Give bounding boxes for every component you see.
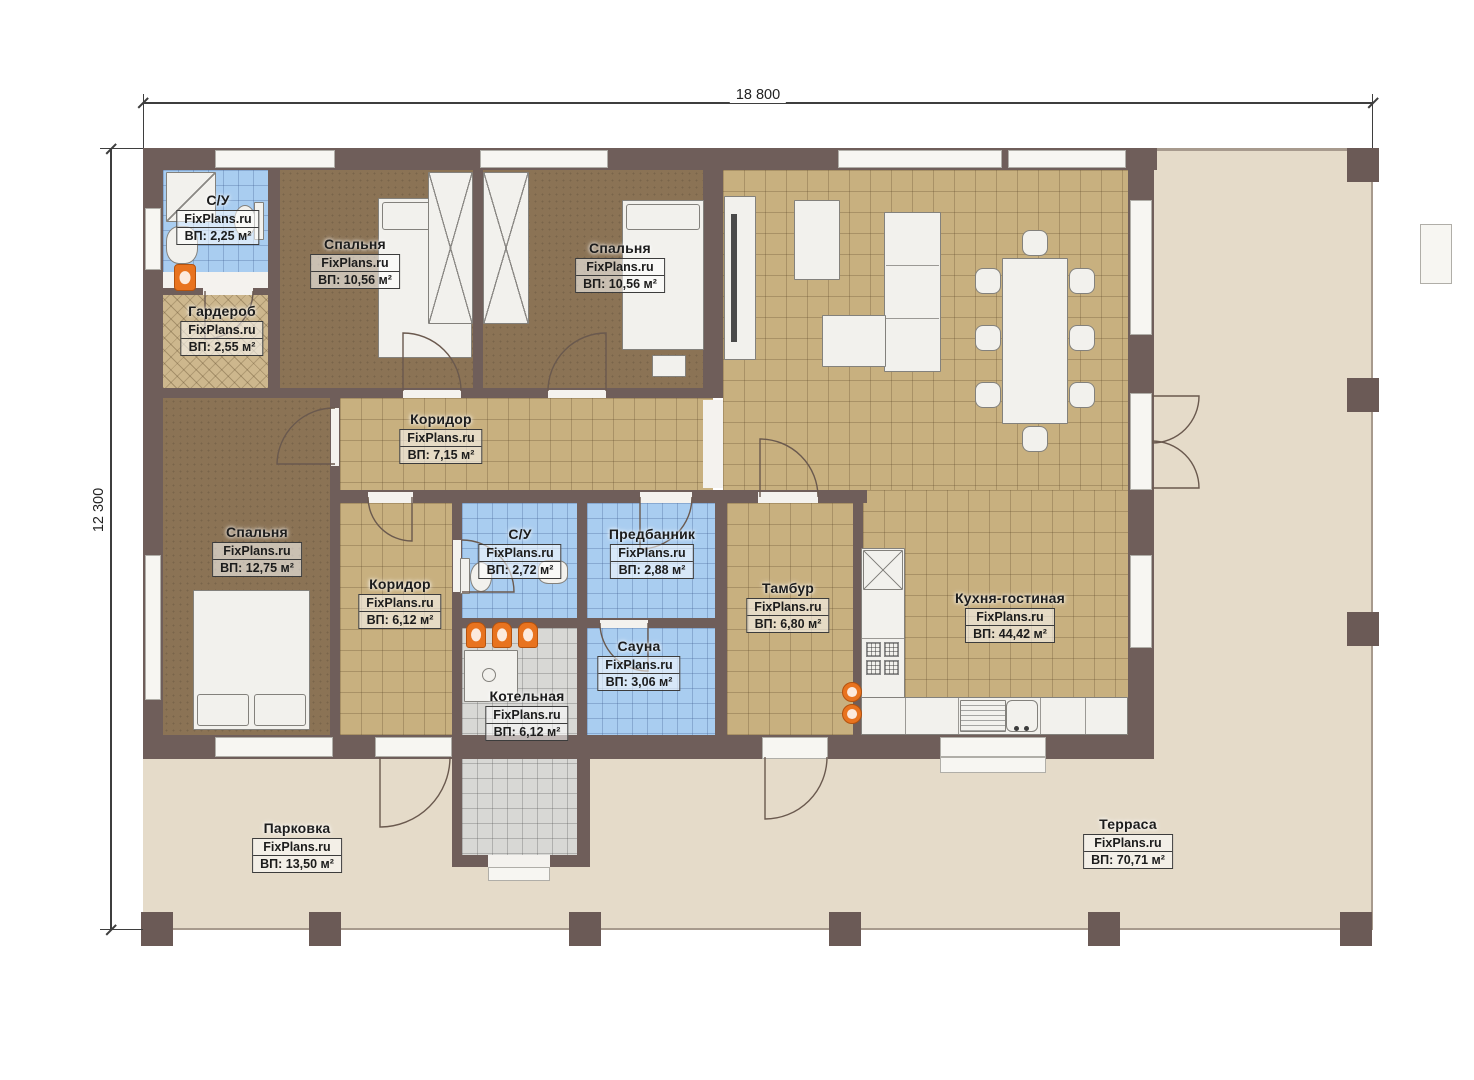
room-label-bedroom-1: Спальня FixPlans.ru ВП: 10,56 м² [310, 236, 400, 289]
room-name: С/У [206, 192, 229, 208]
terrace-edge-line [1371, 148, 1373, 930]
watermark: FixPlans.ru [611, 545, 692, 562]
room-label-kitchen-living: Кухня-гостиная FixPlans.ru ВП: 44,42 м² [955, 590, 1065, 643]
room-info-box: FixPlans.ru ВП: 6,80 м² [746, 598, 829, 633]
room-name: Спальня [226, 524, 288, 540]
closet-icon [483, 172, 529, 324]
dimension-line-left [110, 148, 112, 930]
room-area: ВП: 13,50 м² [253, 856, 341, 872]
floor-corridor-1 [340, 398, 713, 490]
door-threshold-bedroom3 [331, 408, 339, 466]
chair [1069, 325, 1095, 351]
room-label-bedroom-3: Спальня FixPlans.ru ВП: 12,75 м² [212, 524, 302, 577]
counter-divider [862, 638, 904, 639]
watermark: FixPlans.ru [747, 599, 828, 616]
fridge-icon [863, 550, 903, 590]
room-info-box: FixPlans.ru ВП: 13,50 м² [252, 838, 342, 873]
toilet-tank [460, 558, 470, 594]
door-threshold-sauna [600, 620, 648, 628]
room-info-box: FixPlans.ru ВП: 10,56 м² [575, 258, 665, 293]
chair [975, 382, 1001, 408]
faucet-dot [1024, 726, 1029, 731]
room-label-bedroom-2: Спальня FixPlans.ru ВП: 10,56 м² [575, 240, 665, 293]
stove-burner-icon [866, 642, 881, 657]
watermark: FixPlans.ru [400, 430, 481, 447]
room-name: Коридор [369, 576, 431, 592]
dining-table [1002, 258, 1068, 424]
watermark: FixPlans.ru [486, 707, 567, 724]
chair [1022, 426, 1048, 452]
room-name: Тамбур [762, 580, 814, 596]
column [1088, 912, 1120, 946]
room-area: ВП: 3,06 м² [598, 674, 679, 690]
wall-bedroom2-kitchen [703, 170, 723, 388]
boiler-unit-dial [482, 668, 496, 682]
room-info-box: FixPlans.ru ВП: 44,42 м² [965, 608, 1055, 643]
room-info-box: FixPlans.ru ВП: 2,88 м² [610, 544, 693, 579]
watermark: FixPlans.ru [966, 609, 1054, 626]
counter-divider [958, 698, 959, 734]
water-heater-icon [842, 704, 862, 724]
room-name: Кухня-гостиная [955, 590, 1065, 606]
window [145, 555, 161, 700]
room-name: С/У [508, 526, 531, 542]
room-area: ВП: 6,12 м² [359, 612, 440, 628]
room-info-box: FixPlans.ru ВП: 6,12 м² [485, 706, 568, 741]
kitchen-sink-icon [1006, 700, 1038, 732]
room-label-terrace: Терраса FixPlans.ru ВП: 70,71 м² [1083, 816, 1173, 869]
door-threshold-boiler [488, 855, 550, 867]
sofa-section [884, 212, 941, 372]
room-name: Спальня [589, 240, 651, 256]
terrace-edge-line [1154, 148, 1373, 151]
room-area: ВП: 6,80 м² [747, 616, 828, 632]
wall-boiler-ext-left [452, 759, 462, 865]
window [1130, 555, 1152, 648]
window [940, 737, 1046, 757]
room-area: ВП: 2,88 м² [611, 562, 692, 578]
watermark: FixPlans.ru [253, 839, 341, 856]
room-name: Коридор [410, 411, 472, 427]
boiler-icon [492, 622, 512, 648]
chair [975, 268, 1001, 294]
chair [975, 325, 1001, 351]
watermark: FixPlans.ru [479, 545, 560, 562]
room-info-box: FixPlans.ru ВП: 70,71 м² [1083, 834, 1173, 869]
cabinet [794, 200, 840, 280]
room-label-bathroom-2: С/У FixPlans.ru ВП: 2,72 м² [478, 526, 561, 579]
room-area: ВП: 10,56 м² [576, 276, 664, 292]
room-label-sauna: Сауна FixPlans.ru ВП: 3,06 м² [597, 638, 680, 691]
room-info-box: FixPlans.ru ВП: 12,75 м² [212, 542, 302, 577]
watermark: FixPlans.ru [598, 657, 679, 674]
room-area: ВП: 44,42 м² [966, 626, 1054, 642]
chair [1069, 382, 1095, 408]
terrace-bench [1420, 224, 1452, 284]
bed-pillow [197, 694, 249, 726]
column [1340, 912, 1372, 946]
room-area: ВП: 2,72 м² [479, 562, 560, 578]
tv-stand [724, 196, 756, 360]
door-threshold-bedroom2 [548, 390, 606, 398]
stove-burner-icon [866, 660, 881, 675]
dimension-extension [100, 148, 143, 149]
window [1130, 200, 1152, 335]
dimension-height-label: 12 300 [91, 482, 107, 538]
room-name: Котельная [489, 688, 564, 704]
room-label-tambur: Тамбур FixPlans.ru ВП: 6,80 м² [746, 580, 829, 633]
door-threshold-tambur [758, 492, 818, 503]
room-label-predbannik: Предбанник FixPlans.ru ВП: 2,88 м² [609, 526, 695, 579]
room-label-boiler: Котельная FixPlans.ru ВП: 6,12 м² [485, 688, 568, 741]
door-opening-entrance [762, 737, 828, 759]
room-area: ВП: 7,15 м² [400, 447, 481, 463]
room-info-box: FixPlans.ru ВП: 3,06 м² [597, 656, 680, 691]
tv-icon [731, 214, 737, 342]
watermark: FixPlans.ru [181, 322, 262, 339]
room-label-corridor-2: Коридор FixPlans.ru ВП: 6,12 м² [358, 576, 441, 629]
room-area: ВП: 2,25 м² [177, 228, 258, 244]
room-name: Сауна [617, 638, 660, 654]
room-name: Терраса [1099, 816, 1157, 832]
dimension-width-label: 18 800 [730, 87, 786, 103]
boiler-entry-step [488, 867, 550, 881]
kitchen-window-sill [940, 757, 1046, 773]
floor-plan: С/У FixPlans.ru ВП: 2,25 м² Спальня FixP… [0, 0, 1474, 1080]
room-info-box: FixPlans.ru ВП: 2,72 м² [478, 544, 561, 579]
watermark: FixPlans.ru [311, 255, 399, 272]
door-opening-parking [375, 737, 452, 757]
water-heater-icon [842, 682, 862, 702]
room-info-box: FixPlans.ru ВП: 2,25 м² [176, 210, 259, 245]
boiler-icon [466, 622, 486, 648]
closet-icon [428, 172, 473, 324]
window [145, 208, 161, 270]
column [829, 912, 861, 946]
chair [1069, 268, 1095, 294]
watermark: FixPlans.ru [359, 595, 440, 612]
opening-corridor-kitchen [703, 400, 723, 488]
room-name: Гардероб [188, 303, 256, 319]
watermark: FixPlans.ru [1084, 835, 1172, 852]
window [1008, 150, 1126, 168]
door-threshold-corridor2 [368, 492, 413, 503]
room-name: Парковка [264, 820, 331, 836]
faucet-dot [1014, 726, 1019, 731]
door-threshold-predbannik [640, 492, 692, 503]
bed-pillow [254, 694, 306, 726]
column [309, 912, 341, 946]
watermark: FixPlans.ru [576, 259, 664, 276]
room-area: ВП: 70,71 м² [1084, 852, 1172, 868]
wall-bathroom1-bedroom1 [268, 170, 280, 388]
watermark: FixPlans.ru [177, 211, 258, 228]
window [215, 150, 335, 168]
room-info-box: FixPlans.ru ВП: 6,12 м² [358, 594, 441, 629]
room-area: ВП: 6,12 м² [486, 724, 567, 740]
washing-machine-icon [174, 264, 196, 291]
room-info-box: FixPlans.ru ВП: 7,15 м² [399, 429, 482, 464]
chair [1022, 230, 1048, 256]
boiler-icon [518, 622, 538, 648]
room-area: ВП: 12,75 м² [213, 560, 301, 576]
wall-bedroom1-bedroom2 [473, 170, 483, 388]
room-area: ВП: 2,55 м² [181, 339, 262, 355]
dimension-extension [100, 929, 143, 930]
sink-drainer-icon [960, 700, 1006, 732]
sofa-cushion-line [886, 265, 939, 266]
room-name: Предбанник [609, 526, 695, 542]
counter-divider [1040, 698, 1041, 734]
room-label-corridor-1: Коридор FixPlans.ru ВП: 7,15 м² [399, 411, 482, 464]
watermark: FixPlans.ru [213, 543, 301, 560]
room-area: ВП: 10,56 м² [311, 272, 399, 288]
stove-burner-icon [884, 660, 899, 675]
room-info-box: FixPlans.ru ВП: 2,55 м² [180, 321, 263, 356]
stove-burner-icon [884, 642, 899, 657]
room-label-wardrobe: Гардероб FixPlans.ru ВП: 2,55 м² [180, 303, 263, 356]
wall-boiler-ext-right [577, 759, 590, 865]
door-threshold-bedroom1 [403, 390, 461, 398]
window [480, 150, 608, 168]
counter-divider [1085, 698, 1086, 734]
column [569, 912, 601, 946]
room-label-bathroom-1: С/У FixPlans.ru ВП: 2,25 м² [176, 192, 259, 245]
column [1347, 378, 1379, 412]
sofa-chaise [822, 315, 886, 367]
door-threshold-wardrobe [203, 288, 253, 295]
sofa-cushion-line [886, 318, 939, 319]
column [1347, 148, 1379, 182]
window [838, 150, 1002, 168]
window [215, 737, 333, 757]
room-label-parking: Парковка FixPlans.ru ВП: 13,50 м² [252, 820, 342, 873]
column [141, 912, 173, 946]
nightstand [652, 355, 686, 377]
bed-pillow [626, 204, 700, 230]
counter-divider [905, 698, 906, 734]
door-opening-terrace [1130, 393, 1152, 490]
room-name: Спальня [324, 236, 386, 252]
room-info-box: FixPlans.ru ВП: 10,56 м² [310, 254, 400, 289]
column [1347, 612, 1379, 646]
